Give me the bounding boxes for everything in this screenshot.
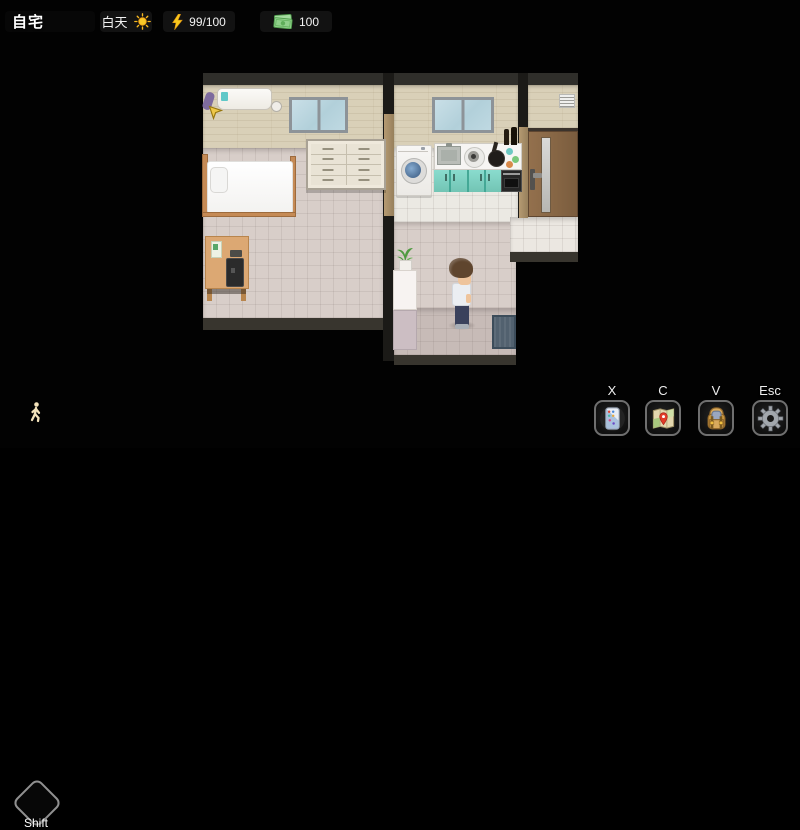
cabinet-door xyxy=(451,170,466,192)
sink-basin xyxy=(441,150,457,161)
sprint-key-label: Shift xyxy=(6,816,66,830)
drawer xyxy=(311,144,346,154)
sprint-control[interactable]: Shift xyxy=(6,388,66,444)
bottle xyxy=(504,129,509,145)
drawer xyxy=(347,176,382,186)
window-mullion xyxy=(317,100,320,130)
time-label: 白天 xyxy=(101,12,127,31)
wall-vent xyxy=(559,94,575,108)
energy-chip: 99/100 xyxy=(163,11,235,32)
entrance-floor xyxy=(510,217,578,252)
window-mullion xyxy=(462,100,465,130)
hotkey-settings: Esc xyxy=(752,384,788,436)
desk-shadow xyxy=(207,289,246,294)
sun-icon xyxy=(134,13,151,30)
cabinet-door xyxy=(434,170,449,192)
teal-cabinets xyxy=(434,170,501,192)
character-pants xyxy=(455,304,469,326)
game-scene xyxy=(0,0,800,448)
map-icon xyxy=(650,405,677,432)
condiment-jar xyxy=(506,148,513,155)
ac-power-socket xyxy=(271,101,282,112)
phone-icon xyxy=(599,405,626,432)
game-viewport: 自宅 白天 99/100 100 xyxy=(0,0,800,448)
dresser xyxy=(306,139,386,190)
character-shoes xyxy=(455,324,469,329)
door-glass-strip xyxy=(541,137,551,213)
lightning-icon xyxy=(172,14,183,30)
location-label: 自宅 xyxy=(12,11,44,32)
cabinet-door xyxy=(469,170,484,192)
energy-value: 99/100 xyxy=(189,15,226,29)
dresser-drawers xyxy=(311,144,381,185)
cash-icon xyxy=(273,14,293,29)
drawer xyxy=(347,165,382,175)
bedroom-window xyxy=(289,97,348,133)
location-chip: 自宅 xyxy=(5,11,95,32)
wok xyxy=(488,150,505,167)
money-chip: 100 xyxy=(260,11,332,32)
condiment-jar xyxy=(506,161,513,168)
door-handle xyxy=(533,173,542,178)
bed-pillow xyxy=(210,167,228,193)
drawer xyxy=(311,155,346,165)
ac-logo xyxy=(221,92,228,101)
drawer xyxy=(311,165,346,175)
washer-panel-line xyxy=(398,151,428,152)
character-hair xyxy=(449,258,473,278)
drawer xyxy=(311,176,346,186)
hotkey-key-label: X xyxy=(594,384,630,398)
bottle xyxy=(511,127,517,145)
burner-center xyxy=(471,154,476,159)
gear-icon xyxy=(757,405,784,432)
drawer xyxy=(347,155,382,165)
hotkey-phone: X xyxy=(594,384,630,436)
character-arm xyxy=(466,294,471,303)
washer-knob xyxy=(421,147,425,150)
paper-mark xyxy=(213,244,218,250)
oven-handle xyxy=(503,173,520,175)
laptop xyxy=(226,258,244,287)
bed-foot-rail xyxy=(202,212,296,217)
hall-bottom-wall xyxy=(394,355,516,365)
money-value: 100 xyxy=(299,15,319,29)
laptop-glint xyxy=(231,268,235,273)
drawer xyxy=(347,144,382,154)
washer-drum xyxy=(405,162,421,178)
cabinet-door xyxy=(486,170,501,192)
map-button[interactable] xyxy=(645,400,681,436)
hotkey-key-label: C xyxy=(645,384,681,398)
oven-window xyxy=(504,178,519,188)
quest-arrow-icon xyxy=(208,105,223,120)
fridge-lower xyxy=(393,310,417,350)
time-chip: 白天 xyxy=(100,11,152,32)
hotkey-key-label: V xyxy=(698,384,734,398)
backpack-button[interactable] xyxy=(698,400,734,436)
bedroom-bottom-wall xyxy=(203,318,383,330)
backpack-icon xyxy=(703,405,730,432)
fridge-upper xyxy=(393,270,417,310)
kitchen-window xyxy=(432,97,494,133)
faucet xyxy=(446,143,452,147)
settings-button[interactable] xyxy=(752,400,788,436)
hotkey-key-label: Esc xyxy=(752,384,788,398)
walking-person-icon xyxy=(24,400,48,424)
desk-gadget xyxy=(230,250,242,257)
hotkey-inventory: V xyxy=(698,384,734,436)
hotkey-map: C xyxy=(645,384,681,436)
entrance-bottom-wall xyxy=(510,252,578,262)
condiment-jar xyxy=(512,156,519,163)
door-mat xyxy=(492,315,516,349)
phone-button[interactable] xyxy=(594,400,630,436)
